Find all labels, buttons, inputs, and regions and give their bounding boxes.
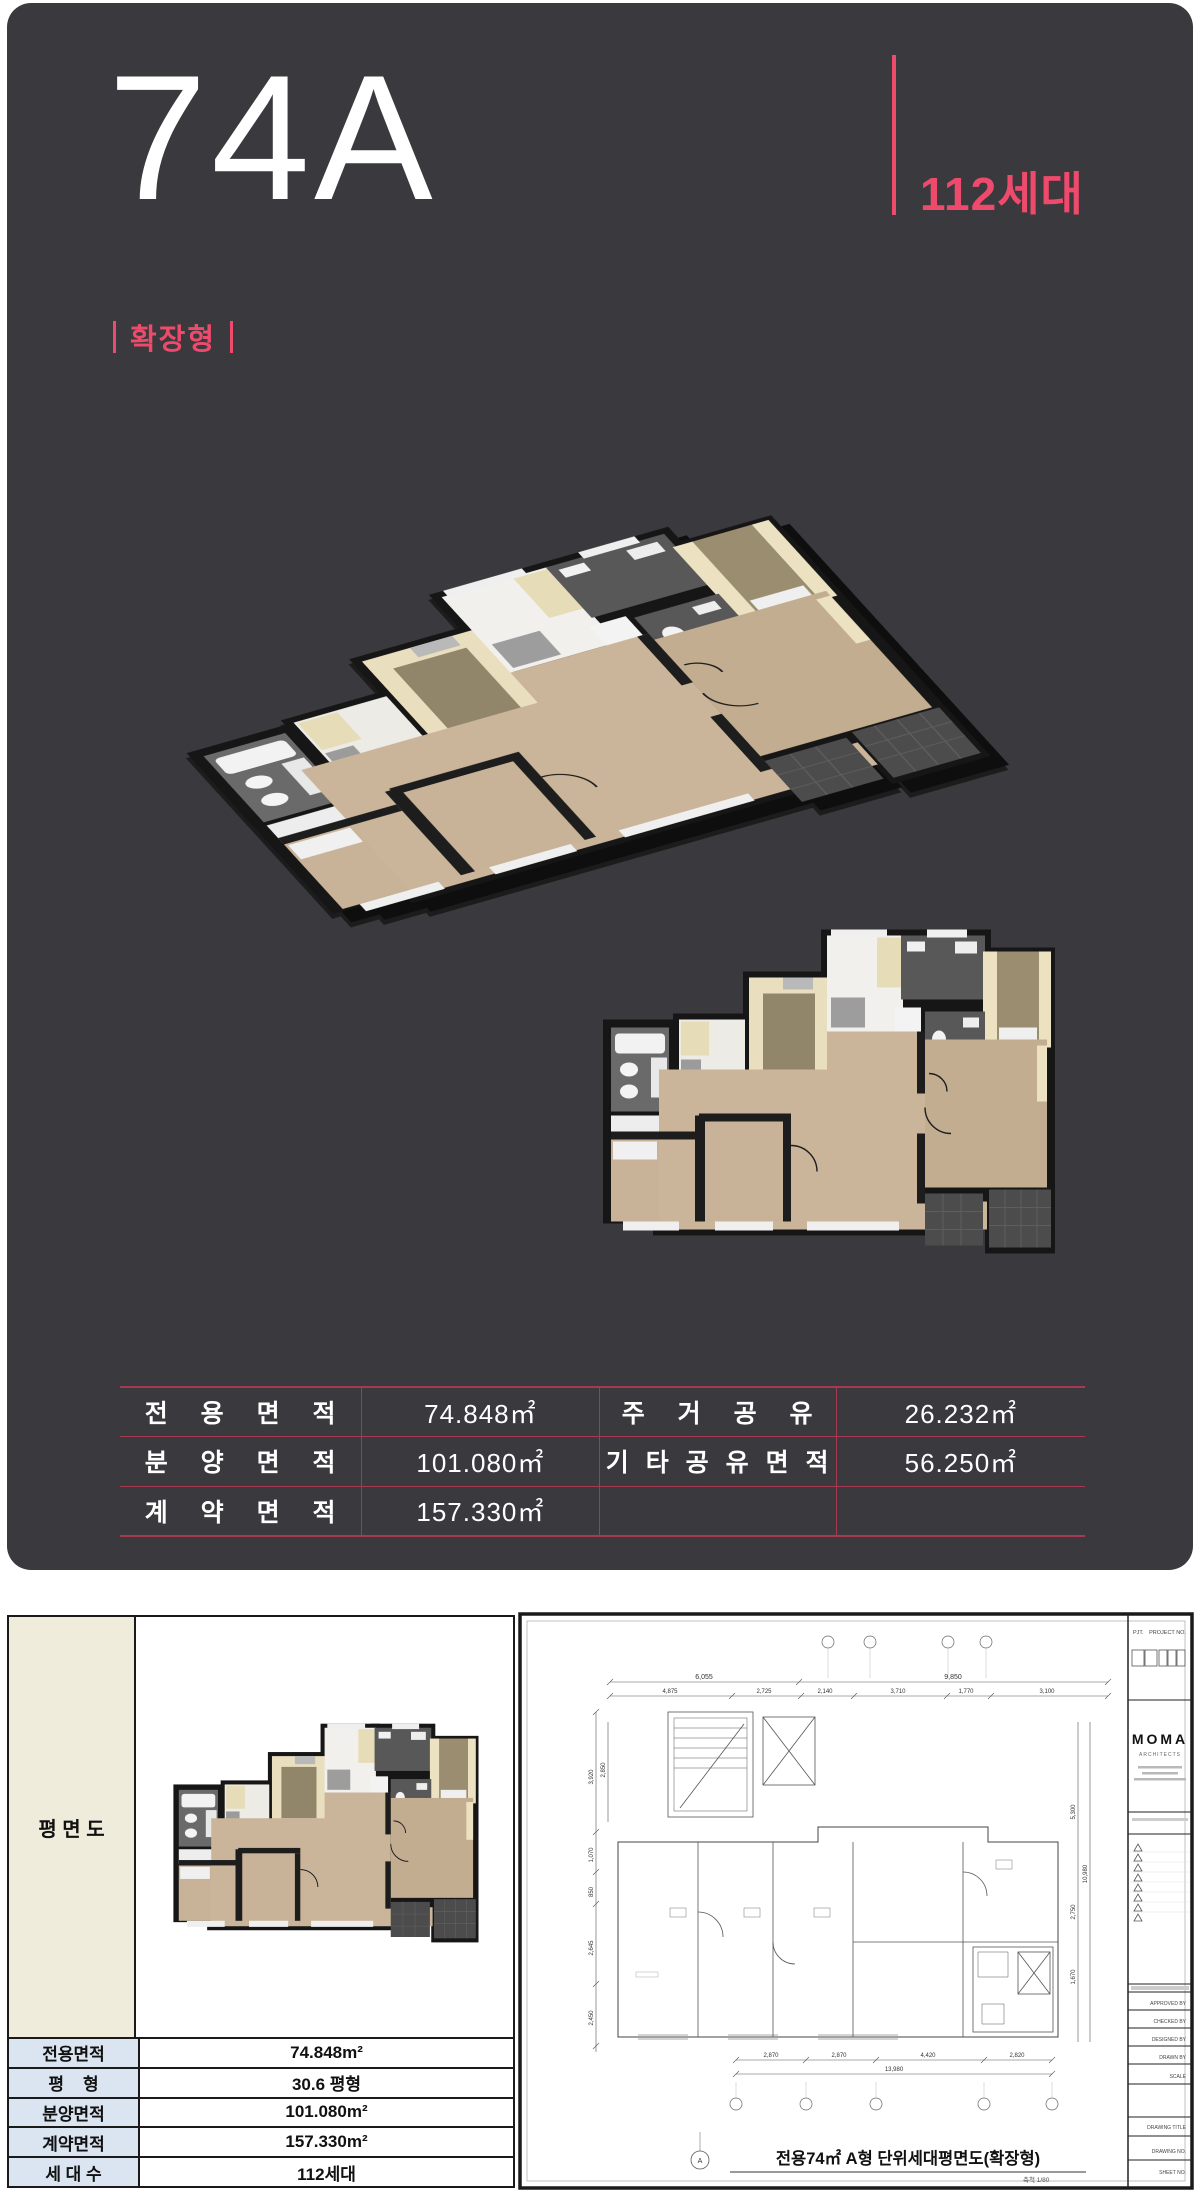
plan-variant-badge: 확장형 — [113, 316, 233, 358]
area-value: 101.080㎡ — [361, 1437, 598, 1485]
svg-text:3,920: 3,920 — [589, 1769, 595, 1785]
unit-count-badge: 112세대 — [920, 158, 1180, 214]
spec-rows: 전용면적 74.848m² 평 형 30.6 평형 분양면적 101.080m²… — [9, 2037, 513, 2186]
floorplan-2d-figure — [595, 918, 1055, 1263]
svg-text:2,725: 2,725 — [756, 1689, 772, 1695]
spec-label: 전용면적 — [9, 2039, 140, 2067]
svg-text:3,710: 3,710 — [890, 1689, 906, 1695]
svg-text:10,980: 10,980 — [1083, 1864, 1089, 1883]
table-row: 계 약 면 적 157.330㎡ — [120, 1487, 1085, 1535]
svg-text:1,670: 1,670 — [1071, 1969, 1077, 1985]
area-summary-table: 전 용 면 적 74.848㎡ 주 거 공 유 26.232㎡ 분 양 면 적 … — [120, 1386, 1085, 1537]
floorplan-small-svg — [136, 1617, 513, 2035]
svg-text:CHECKED BY: CHECKED BY — [1153, 2019, 1186, 2025]
svg-text:6,055: 6,055 — [695, 1674, 713, 1681]
spec-value: 112세대 — [140, 2158, 513, 2186]
spec-label: 분양면적 — [9, 2099, 140, 2127]
table-row: 평 형 30.6 평형 — [9, 2067, 513, 2097]
spec-value: 101.080m² — [140, 2099, 513, 2127]
plan-label-cell: 평 면 도 — [9, 1617, 136, 2037]
svg-text:1,070: 1,070 — [589, 1847, 595, 1863]
area-value — [836, 1487, 1085, 1535]
svg-text:2,870: 2,870 — [831, 2053, 847, 2059]
spec-label: 평 형 — [9, 2069, 140, 2097]
area-value: 26.232㎡ — [836, 1388, 1085, 1436]
area-value: 56.250㎡ — [836, 1437, 1085, 1485]
svg-text:DRAWING TITLE: DRAWING TITLE — [1147, 2125, 1187, 2131]
badge-right-bar — [230, 321, 233, 353]
titleblock-pjt: PJT. — [1133, 1630, 1144, 1636]
svg-text:1,770: 1,770 — [958, 1689, 974, 1695]
plan-image-cell — [136, 1617, 513, 2037]
svg-text:DESIGNED BY: DESIGNED BY — [1152, 2037, 1187, 2043]
svg-text:DRAWN BY: DRAWN BY — [1159, 2055, 1186, 2061]
svg-text:2,820: 2,820 — [1009, 2053, 1025, 2059]
table-row: 전용면적 74.848m² — [9, 2037, 513, 2067]
svg-text:850: 850 — [589, 1886, 595, 1897]
area-label: 계 약 면 적 — [120, 1487, 361, 1535]
spec-value: 74.848m² — [140, 2039, 513, 2067]
svg-text:5,300: 5,300 — [1071, 1804, 1077, 1820]
unit-type-title: 74A — [108, 38, 528, 238]
area-label — [599, 1487, 836, 1535]
caption-grid-bubble: A — [698, 2158, 703, 2165]
area-label: 기 타 공 유 면 적 — [599, 1437, 836, 1485]
accent-vertical-line — [892, 55, 896, 215]
table-row: 세 대 수 112세대 — [9, 2156, 513, 2186]
area-label: 주 거 공 유 — [599, 1388, 836, 1436]
plan-variant-label: 확장형 — [130, 316, 216, 358]
area-label: 전 용 면 적 — [120, 1388, 361, 1436]
cad-sheet-figure: PJT. PROJECT NO. MOMA ARCHITECTS — [518, 1612, 1194, 2190]
spec-label: 계약면적 — [9, 2128, 140, 2156]
table-row: 전 용 면 적 74.848㎡ 주 거 공 유 26.232㎡ — [120, 1388, 1085, 1437]
badge-left-bar — [113, 321, 116, 353]
svg-text:DRAWING NO.: DRAWING NO. — [1152, 2149, 1186, 2155]
svg-text:4,420: 4,420 — [920, 2053, 936, 2059]
area-value: 157.330㎡ — [361, 1487, 598, 1535]
titleblock-project-no: PROJECT NO. — [1149, 1630, 1186, 1636]
svg-text:2,645: 2,645 — [589, 1940, 595, 1956]
svg-text:9,850: 9,850 — [944, 1674, 962, 1681]
svg-text:4,875: 4,875 — [662, 1689, 678, 1695]
table-row: 분 양 면 적 101.080㎡ 기 타 공 유 면 적 56.250㎡ — [120, 1437, 1085, 1486]
brochure-page: 74A 112세대 확장형 — [0, 0, 1200, 2204]
svg-text:SHEET NO.: SHEET NO. — [1159, 2170, 1186, 2176]
table-row: 계약면적 157.330m² — [9, 2126, 513, 2156]
titleblock-logo: MOMA — [1132, 1731, 1188, 1747]
svg-text:APPROVED BY: APPROVED BY — [1150, 2001, 1187, 2007]
svg-text:2,140: 2,140 — [817, 1689, 833, 1695]
spec-value: 157.330m² — [140, 2128, 513, 2156]
svg-text:2,750: 2,750 — [1071, 1904, 1077, 1920]
table-row: 분양면적 101.080m² — [9, 2097, 513, 2127]
cad-sheet-svg: PJT. PROJECT NO. MOMA ARCHITECTS — [518, 1612, 1194, 2190]
svg-text:13,980: 13,980 — [885, 2067, 904, 2073]
svg-text:2,870: 2,870 — [763, 2053, 779, 2059]
titleblock-logo-sub: ARCHITECTS — [1139, 1752, 1181, 1758]
spec-label: 세 대 수 — [9, 2158, 140, 2186]
svg-text:3,100: 3,100 — [1039, 1689, 1055, 1695]
svg-text:2,850: 2,850 — [601, 1762, 607, 1778]
svg-text:SCALE: SCALE — [1170, 2074, 1187, 2080]
floorplan-2d-svg — [595, 918, 1055, 1263]
spec-value: 30.6 평형 — [140, 2069, 513, 2097]
drawing-caption: 전용74㎡ A형 단위세대평면도(확장형) — [776, 2148, 1040, 2168]
floorplan-3d-svg — [108, 498, 992, 942]
area-label: 분 양 면 적 — [120, 1437, 361, 1485]
area-value: 74.848㎡ — [361, 1388, 598, 1436]
svg-text:2,450: 2,450 — [589, 2010, 595, 2026]
spec-figure: 평 면 도 전용면적 74.848m² 평 형 30.6 평형 분양면적 101… — [7, 1615, 515, 2188]
drawing-scale-note: 축척 1/80 — [1023, 2175, 1050, 2184]
